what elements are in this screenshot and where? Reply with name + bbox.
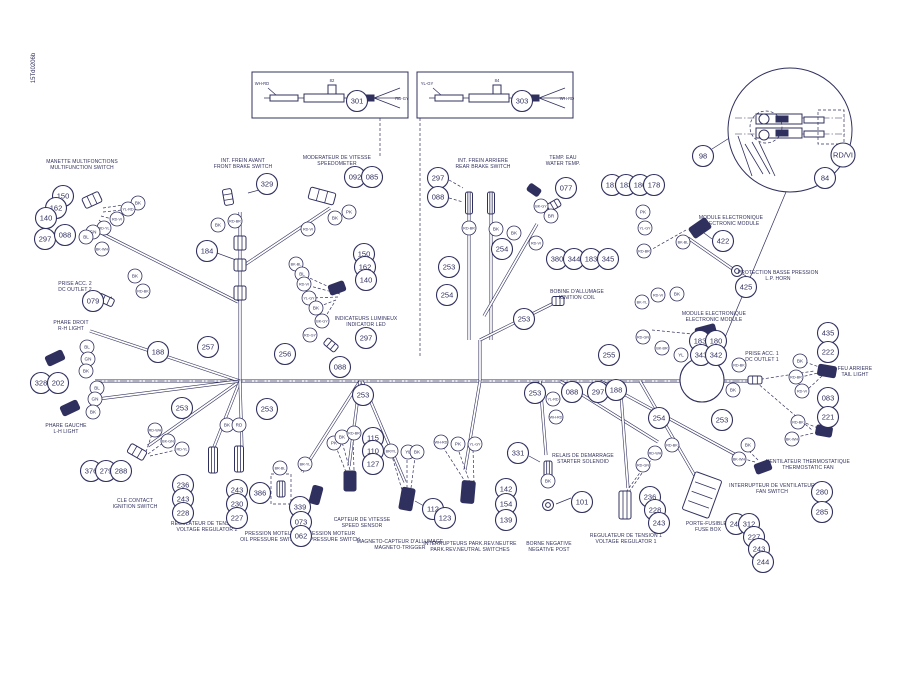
wire-label-bk-wh: BK-WH [785,432,799,446]
connector-body [748,376,762,384]
callout-number: 228 [177,509,190,518]
wire-label-rd-br: RD-BR [462,221,476,235]
callout-number: 253 [443,263,456,272]
wire-label-text: RD-YL [176,448,187,452]
connector-body [277,481,285,497]
harness-tube-core [103,234,238,302]
callout-number: 297 [39,235,52,244]
connector-part [60,400,81,417]
wire-label-text: BR-YL [300,463,311,467]
callout-number: 188 [152,348,165,357]
callout-84: 84 [815,168,836,189]
wiring-diagram-canvas: 15Td0206b 82WH-RDRD-GY84YL-GYWH-RD MANET… [0,0,900,697]
callout-number: 380 [551,255,564,264]
wire-label-text: RD-WH [149,429,162,433]
callout-083: 083 [818,388,839,409]
wire-label-text: PK [455,442,462,447]
connector-part [308,187,336,205]
callout-425: 425 [736,277,757,298]
callout-139: 139 [496,510,517,531]
connector-inset-1: 82WH-RDRD-GY [252,72,409,118]
wire-label-bk: BK [309,301,323,315]
component-label-dc-outlet-2: PRISE ACC. 2DC OUTLET 2 [58,281,92,293]
connector-part [323,337,339,352]
connector-part [309,485,323,505]
component-label-en: VOLTAGE REGULATOR 1 [596,539,657,545]
callout-leader [556,498,571,504]
callout-number: RD/VI [833,151,853,160]
wire-label-yl-gy: YL-GY [468,437,482,451]
component-label-starter-solenoid: RELAIS DE DEMARRAGESTARTER SOLENOID [552,453,614,465]
magnifier-contact [776,116,788,122]
component-label-en: SPEEDOMETER [317,161,357,167]
wire-label-rd-vi: RD-VI [301,222,315,236]
wire-label-br: BR [544,209,558,223]
connector-body [461,480,476,503]
callout-number: 297 [592,388,605,397]
wire-label-text: YL-GY [469,443,481,447]
callout-number: 253 [518,315,531,324]
callout-062: 062 [291,526,312,547]
callout-345: 345 [598,249,619,270]
callout-numbers-layer: 1501621402970880793282021883762792882362… [31,91,856,573]
callout-085: 085 [362,167,383,188]
connector-body [60,400,81,417]
wire-label-text: BK [414,450,421,455]
callout-number: 221 [822,413,835,422]
wire-label-bk-gn: BK-GN [161,434,175,448]
callout-98: 98 [693,146,714,167]
wire-label-text: RD-BR [638,250,650,254]
callout-number: 101 [576,498,589,507]
connector-part [466,192,473,214]
callout-number: 088 [59,231,72,240]
wire-label-rd-bk: RD-BK [665,438,679,452]
callout-297: 297 [428,168,449,189]
component-label-en: ELECTRONIC MODULE [686,317,743,323]
harness-tube-core [243,208,330,266]
callout-number: 088 [334,363,347,372]
component-label-en: L.P. HORN [765,276,791,282]
wire-label-text: BK [730,388,737,393]
component-label-speedometer: MODERATEUR DE VITESSESPEEDOMETER [303,155,372,167]
callout-140: 140 [36,208,57,229]
callout-number: 253 [261,405,274,414]
component-label-en: MAGNETO-TRIGGER [374,545,425,551]
inset-cable-segment [435,95,463,101]
callout-number: 092 [349,173,362,182]
wire-label-text: RD-WH [649,452,662,456]
wire-label-text: BK [797,359,804,364]
component-label-park-rev-neutral-switches: INTERRUPTEURS PARK.REV.NEUTREPARK.REV.NE… [423,541,517,553]
wire-label-text: BL [84,345,90,350]
component-label-en: VOLTAGE REGULATOR 2 [177,527,238,533]
wire-label-bk: BK [793,354,807,368]
wire-label-text: RD-GN [637,464,649,468]
wire-label-yl-gy: YL-GY [638,221,652,235]
connector-part [234,236,246,250]
wire-label-text: RD-BR [229,220,241,224]
callout-number: 344 [568,255,581,264]
callout-number: 140 [360,276,373,285]
wire-label-bk-wh: BK-WH [95,242,109,256]
magnifier-terminal [759,114,769,124]
wire-label-text: BK-GN [162,440,174,444]
wire-label-bk: BK [541,474,555,488]
callout-number: 285 [816,508,829,517]
component-label-tail-light: FEU ARRIERETAIL LIGHT [838,366,873,378]
wire-label-pk: PK [451,437,465,451]
inset-left-wire-label: WH-RD [255,81,269,86]
callout-253: 253 [257,399,278,420]
terminal-block [234,236,246,250]
component-label-r-h-light: PHARE DROITR-H LIGHT [53,320,88,332]
callout-number: 84 [821,174,829,183]
wire-label-text: BR/YL [386,450,397,454]
inset-splice-tag [328,85,336,94]
callout-184: 184 [197,241,218,262]
callout-number: 088 [566,388,579,397]
callout-422: 422 [713,231,734,252]
component-label-indicator-led: INDICATEURS LUMINEUXINDICATOR LED [335,316,398,328]
callout-leader [529,456,540,462]
callout-140: 140 [356,270,377,291]
wire-label-text: BK [545,479,552,484]
connector-part [682,471,722,518]
callout-253: 253 [514,309,535,330]
wire-label-text: BK [511,231,518,236]
wire-label-bk: BK [128,269,142,283]
harness-tube-core [465,381,480,470]
magnifier-sleeve [804,117,824,123]
callout-number: 085 [366,173,379,182]
callout-number: 422 [717,237,730,246]
wire-label-text: BR [548,214,555,219]
callout-number: 255 [603,351,616,360]
callout-088: 088 [562,382,583,403]
connector-part [461,480,476,503]
callout-number: 288 [115,467,128,476]
connector-part [748,376,762,384]
callout-101: 101 [572,492,593,513]
callout-number: 139 [500,516,513,525]
wire-label-text: RD-VI [112,218,122,222]
wire-label-rd-gy: RD-GY [303,328,317,342]
connector-part [127,443,148,461]
connector-part [222,188,234,205]
connector-body [222,188,234,205]
wire-label-rd-bk: RD-BK [791,415,805,429]
wire-label-text: WH-RD [550,416,563,420]
component-label-ignition-switch: CLE CONTACTIGNITION SWITCH [113,498,158,510]
callout-number: 079 [87,297,100,306]
callout-number: 254 [441,291,454,300]
component-label-en: SPEED SENSOR [342,523,383,529]
wire-label-text: YL [678,353,684,358]
callout-rd-vi: RD/VI [831,143,855,167]
callout-253: 253 [712,410,733,431]
wire-label-rd-br: RD-BR [637,244,651,258]
callout-253: 253 [353,385,374,406]
wire-label-bk-gy: BK-GY [315,314,329,328]
terminal-block [488,192,495,214]
callout-280: 280 [812,482,833,503]
callout-number: 154 [500,500,513,509]
wire-label-bk: BK [670,287,684,301]
callout-number: 183 [585,255,598,264]
callout-288: 288 [111,461,132,482]
callout-254: 254 [649,408,670,429]
callout-number: 142 [500,485,513,494]
wire-label-text: BK-GY [316,320,328,324]
callout-222: 222 [818,342,839,363]
wire-label-yl-rd: YL-RD [121,202,135,216]
callout-number: 222 [822,348,835,357]
callout-088: 088 [428,187,449,208]
callout-254: 254 [492,239,513,260]
wire-label-text: RD-BK [792,421,804,425]
wire-label-text: YL-RD [122,208,133,212]
callout-number: 331 [512,449,525,458]
wire-label-br-yl: BR-YL [298,457,312,471]
wire-label-text: BL [299,272,305,277]
callout-number: 253 [529,389,542,398]
magnifier-sleeve [804,131,824,137]
component-label-electronic-module: MODULE ELECTRONIQUEELECTRONIC MODULE [699,215,764,227]
wire-label-text: BK [135,201,142,206]
callout-number: 303 [516,97,529,106]
wire-label-text: RD-VI [299,283,309,287]
inset-splice-tag [493,85,501,94]
callout-number: 257 [202,343,215,352]
inset-splice-number: 82 [330,78,335,83]
callout-leader [217,253,236,260]
wire-label-rd-bk: RD-BK [732,358,746,372]
wire-label-rd-bk: RD-BK [136,284,150,298]
inset-right-wire-label: RD-GY [395,96,409,101]
wire-label-text: BK-BR [656,347,668,351]
callout-088: 088 [330,357,351,378]
wire-label-text: BK-BL [678,241,689,245]
wire-label-wh-rd: WH-RD [434,435,448,449]
connector-body [817,364,837,378]
wire-label-bk: BK [507,226,521,240]
callout-number: 342 [710,351,723,360]
wire-label-rd: RD [232,418,246,432]
wire-label-text: BK-YL [637,301,648,305]
component-label-en: L-H LIGHT [53,429,78,435]
inset-left-wire-label: YL-GY [421,81,434,86]
terminal-block [466,192,473,214]
connector-part [45,350,66,367]
callout-number: 329 [261,180,274,189]
callout-386: 386 [250,483,271,504]
wire-label-text: RD-VI [303,228,313,232]
component-label-thermostatic-fan: VENTILATEUR THERMOSTATIQUETHERMOSTATIC F… [766,459,850,471]
callout-number: 202 [52,379,65,388]
wire-label-text: BK [745,443,752,448]
component-label-en: NEGATIVE POST [528,547,569,553]
component-label-en: FUSE BOX [695,527,722,533]
wire-label-text: BK [313,306,320,311]
component-label-fan-switch: INTERRUPTEUR DE VENTILATEURFAN SWITCH [729,483,815,495]
connector-part [399,487,416,511]
connector-body [323,337,339,352]
wire-label-bk: BK [726,383,740,397]
component-label-en: FRONT BRAKE SWITCH [214,164,273,170]
component-label-en: R-H LIGHT [58,326,84,332]
wire-label-bl: BL [79,230,93,244]
wire-label-text: YL-GY [639,227,651,231]
wire-label-rd-vi: RD-VI [529,236,543,250]
wire-label-text: BK [674,292,681,297]
callout-number: 386 [254,489,267,498]
callout-301: 301 [347,91,368,112]
wire-label-rd-gn: RD-GN [636,458,650,472]
component-labels-layer: MANETTE MULTIFONCTIONSMULTIFUNCTION SWIT… [45,155,872,553]
connector-body [328,281,346,296]
callout-257: 257 [198,337,219,358]
callout-number: 297 [432,174,445,183]
wire-label-text: YL-GY [303,297,315,301]
callout-254: 254 [437,285,458,306]
component-label-l-h-light: PHARE GAUCHEL-H LIGHT [45,423,87,435]
wire-label-bk-wh: BK-WH [732,452,746,466]
connector-body [45,350,66,367]
wire-label-rd-br: RD-BR [228,214,242,228]
wire-label-text: GN [92,397,99,402]
callout-number: 339 [294,503,307,512]
component-label-en: MULTIFUNCTION SWITCH [50,165,114,171]
wire-label-text: BL [94,386,100,391]
callout-number: 140 [40,214,53,223]
callout-178: 178 [644,175,665,196]
inset-cable-segment [469,94,509,102]
component-label-negative-post: BORNE NEGATIVENEGATIVE POST [526,541,572,553]
connector-part [277,481,285,497]
wire-label-text: RD-VI [797,390,807,394]
wire-label-text: WH-RD [435,441,448,445]
terminal-block [235,446,244,472]
callout-number: 253 [357,391,370,400]
wire-label-text: RD-BK [666,444,678,448]
component-label-en: REAR BRAKE SWITCH [455,164,510,170]
callout-number: 98 [699,152,707,161]
callout-188: 188 [148,342,169,363]
callout-number: 328 [35,379,48,388]
callout-435: 435 [818,323,839,344]
magnifier-contact [776,130,788,136]
callout-244: 244 [753,552,774,573]
callout-number: 188 [610,386,623,395]
callout-253: 253 [439,257,460,278]
wire-label-text: BK-BL [291,263,302,267]
connector-part [526,183,541,197]
terminal-block [209,447,218,473]
wire-fan-dash [449,180,463,202]
callout-number: 077 [560,184,573,193]
callout-number: 123 [439,514,452,523]
component-label-water-temp: TEMP. EAUWATER TEMP. [546,155,581,167]
callout-number: 227 [231,514,244,523]
component-label-front-brake-switch: INT. FREIN AVANTFRONT BRAKE SWITCH [214,158,273,170]
wire-label-text: BK-WH [733,458,746,462]
wire-label-bk-br: BK-BR [655,341,669,355]
wire-label-yl: YL [674,348,688,362]
wire-label-rd-vi: RD-VI [297,277,311,291]
terminal-block [619,491,631,519]
callout-228: 228 [173,503,194,524]
callout-303: 303 [512,91,533,112]
callout-329: 329 [257,174,278,195]
component-label-en: WATER TEMP. [546,161,581,167]
component-label-en: ELECTRONIC MODULE [703,221,760,227]
callout-227: 227 [227,508,248,529]
wire-label-bk: BK [211,218,225,232]
wire-label-bk: BK [328,211,342,225]
callout-number: 254 [496,245,509,254]
wire-label-text: BK [132,274,139,279]
callout-number: 244 [757,558,770,567]
connector-part [234,259,246,271]
wire-label-text: BK [83,369,90,374]
wire-label-text: GN [85,357,92,362]
wire-label-text: BL [83,235,89,240]
wire-label-text: BK-WH [96,248,109,252]
connector-part [82,191,103,209]
callout-number: 243 [653,519,666,528]
component-label-dc-outlet-1: PRISE ACC. 1DC OUTLET 1 [745,351,779,363]
inset-splice-number: 84 [495,78,500,83]
component-label-en: TAIL LIGHT [841,372,868,378]
corner-plate-code: 15Td0206b [31,52,37,83]
wire-label-rd-wh: RD-WH [148,423,162,437]
connector-part [234,286,246,300]
wire-label-text: RD-BR [463,227,475,231]
callout-leader [704,233,712,239]
wire-label-text: YL-RD [547,398,558,402]
callout-221: 221 [818,407,839,428]
wire-fan-dash [652,330,692,334]
ring-terminal-hole [546,503,551,508]
component-label-en: FAN SWITCH [756,489,788,495]
callout-253: 253 [525,383,546,404]
magnifier-terminal [759,130,769,140]
callout-number: 297 [360,334,373,343]
wire-label-br-yl: BR/YL [384,444,398,458]
wire-label-text: RD-BK [137,290,149,294]
dashed-lines-layer [99,118,822,492]
callout-number: 256 [279,350,292,359]
connector-body [399,487,416,511]
wire-label-bk: BK [79,364,93,378]
wire-label-bk-bl: BK-BL [676,235,690,249]
callout-number: 425 [740,283,753,292]
wire-label-rd-br: RD-BR [347,426,361,440]
callout-number: 178 [648,181,661,190]
wire-label-rd-br: RD-BR [789,370,803,384]
connector-part [817,364,837,378]
wire-label-text: RD-VI [653,294,663,298]
callout-number: 253 [176,404,189,413]
connector-body [82,191,103,209]
wire-label-text: RD-BR [790,376,802,380]
wire-label-bk: BK [741,438,755,452]
callout-number: 301 [351,97,364,106]
wire-label-text: RD [236,423,243,428]
terminal-block [234,259,246,271]
wire-label-text: BK [224,423,231,428]
